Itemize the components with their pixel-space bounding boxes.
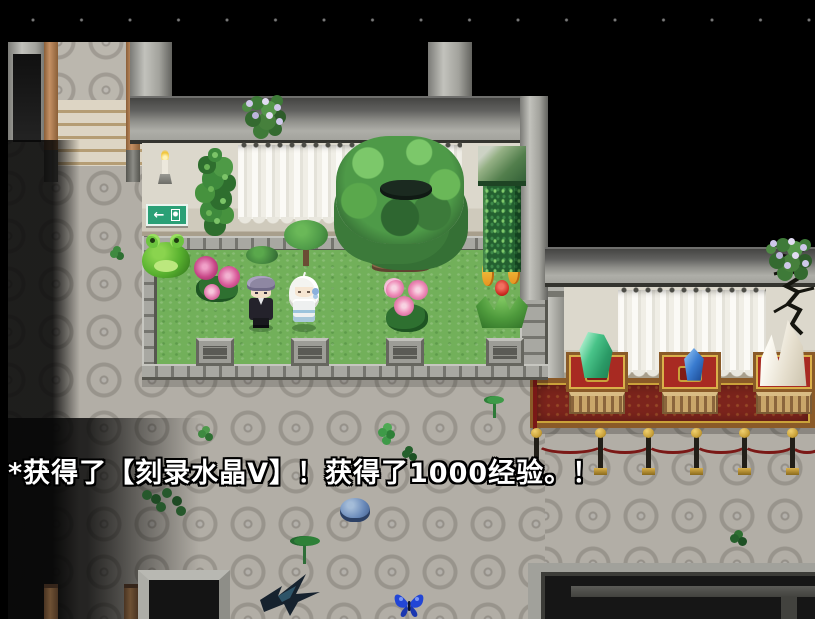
curtain-rings	[618, 287, 766, 294]
exit-sign[interactable]: ←	[146, 204, 188, 226]
garden-border-bottom	[142, 364, 548, 380]
candle-body	[162, 160, 168, 174]
entrance-doorway[interactable]	[13, 54, 41, 142]
exit-runner-icon	[171, 209, 180, 221]
garden-floor-shadow	[142, 380, 548, 387]
wall-column-mid	[428, 42, 472, 100]
rope	[646, 434, 700, 454]
table-front	[569, 392, 625, 414]
weed	[110, 250, 118, 258]
platform-step	[571, 586, 815, 597]
ivy-vine	[190, 148, 242, 238]
rope-post	[646, 436, 651, 470]
frog-statue	[140, 230, 192, 280]
stone-plaque	[291, 338, 329, 366]
platform-step	[781, 597, 797, 619]
game-viewport[interactable]: ←	[0, 0, 815, 619]
wood-post	[124, 584, 138, 619]
post-finial	[595, 428, 606, 438]
plaque-inscription	[203, 346, 227, 359]
character-dark-suit[interactable]	[246, 276, 276, 332]
plaque-inscription	[493, 346, 517, 359]
clover-dark	[730, 534, 739, 543]
rope	[536, 434, 604, 454]
post-finial	[531, 428, 542, 438]
candle-sconce	[156, 150, 174, 188]
post-base	[738, 468, 751, 475]
table-front	[756, 392, 812, 414]
rope-post	[742, 436, 747, 470]
bird-swallow-icon	[256, 568, 326, 618]
dark-platform	[528, 563, 815, 619]
round-bush	[436, 242, 476, 270]
plaque-inscription	[298, 346, 322, 359]
char2-sash	[293, 310, 315, 313]
wall-flower-bush	[762, 238, 814, 286]
stone-plaque	[486, 338, 524, 366]
butterfly-icon	[393, 589, 425, 619]
char1-eyes	[255, 292, 267, 294]
exit-arrow-icon: ←	[154, 209, 165, 222]
char2-flower-ornament	[312, 288, 319, 295]
rope	[598, 434, 652, 454]
clover-dark	[402, 450, 410, 458]
pillar-shaft	[483, 186, 521, 272]
post-finial	[691, 428, 702, 438]
post-finial	[739, 428, 750, 438]
sprout	[290, 536, 320, 564]
vine-pillar	[478, 146, 526, 272]
pillar-capital	[478, 146, 526, 186]
rope-vertical	[533, 380, 537, 432]
stone-plaque	[386, 338, 424, 366]
post-finial	[787, 428, 798, 438]
char1-hair	[247, 276, 275, 291]
candle-base	[158, 174, 172, 184]
clover-dark	[142, 490, 152, 500]
blue-slime[interactable]	[340, 498, 370, 522]
event-message: *获得了【刻录水晶Ⅴ】！获得了1000经验。！	[8, 458, 600, 490]
bottom-doorway[interactable]	[138, 570, 230, 619]
wood-post	[44, 584, 58, 619]
bat-icon	[380, 180, 432, 200]
clover	[378, 428, 387, 437]
post-base	[642, 468, 655, 475]
plaque-inscription	[393, 346, 417, 359]
small-bush	[246, 246, 278, 264]
pink-roses	[382, 278, 432, 334]
sapling-tree	[284, 220, 328, 266]
stars	[0, 18, 815, 22]
post-base	[690, 468, 703, 475]
post-base	[786, 468, 799, 475]
character-white-kimono[interactable]	[289, 272, 319, 332]
rope-post	[790, 436, 795, 470]
char2-shadow	[292, 324, 316, 332]
rail-post-right	[126, 150, 140, 182]
table-front	[662, 392, 718, 414]
stone-plaque	[196, 338, 234, 366]
rope-post	[694, 436, 699, 470]
peony-flowers	[192, 254, 242, 306]
rope	[694, 434, 748, 454]
char2-eyes	[298, 291, 310, 293]
museum-pilaster	[548, 287, 564, 380]
char1-legs	[253, 318, 269, 328]
wall-column-left	[130, 42, 172, 100]
sprout	[484, 396, 504, 418]
rope	[742, 434, 796, 454]
post-finial	[643, 428, 654, 438]
wall-flower-bush	[238, 96, 290, 142]
tree-roots	[372, 258, 430, 272]
